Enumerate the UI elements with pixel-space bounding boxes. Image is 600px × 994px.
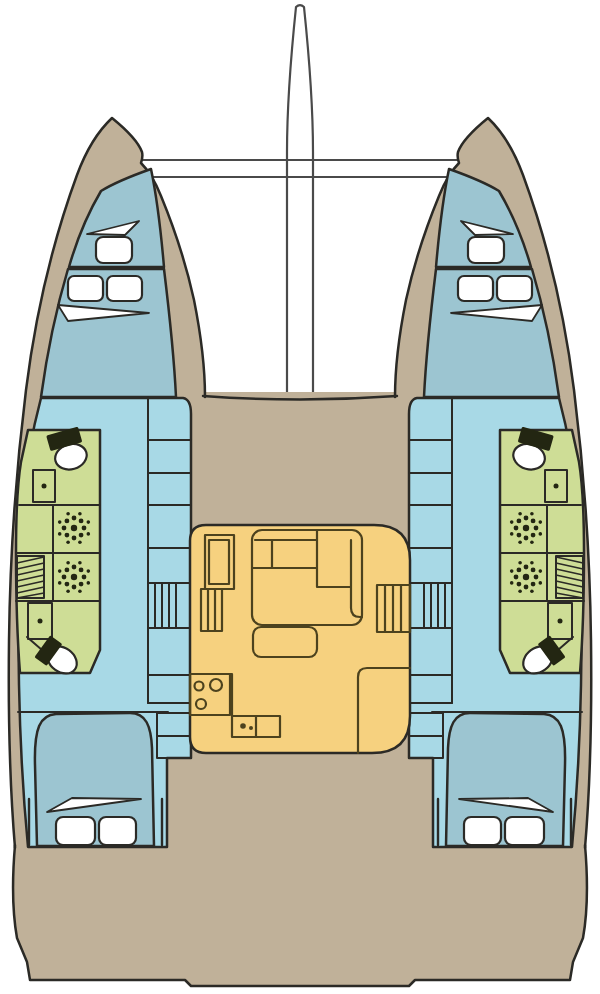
port-hull — [9, 118, 205, 852]
stern-deck-fill — [13, 845, 587, 986]
catamaran-floor-plan — [0, 0, 600, 994]
starboard-hull — [395, 118, 591, 852]
salon — [190, 525, 410, 753]
bowsprit-icon — [287, 5, 313, 396]
pillow — [107, 276, 142, 301]
plan-root — [9, 5, 591, 986]
pillow — [96, 237, 132, 263]
salon-cabin — [190, 525, 410, 753]
pillow — [68, 276, 103, 301]
pillow — [99, 817, 136, 845]
pillow — [56, 817, 95, 845]
